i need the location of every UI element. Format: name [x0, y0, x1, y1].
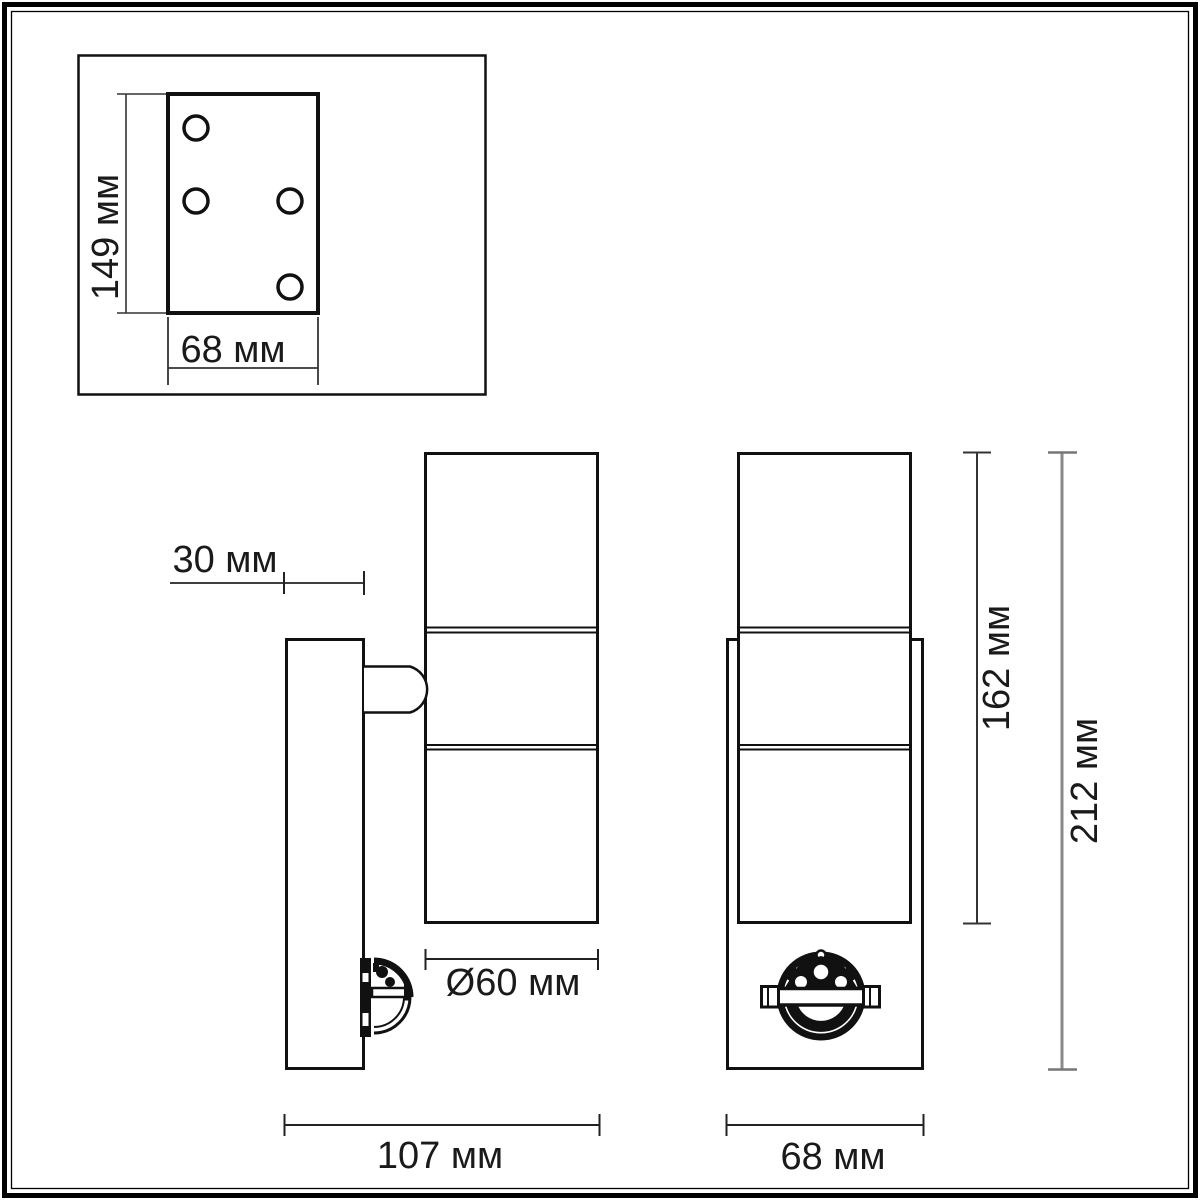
technical-drawing-page: 149 мм 68 мм 30 мм Ø60 мм 107 мм 162 мм …	[0, 0, 1200, 1200]
side-cylinder-body	[426, 454, 598, 923]
front-view	[726, 452, 1077, 1136]
side-mounting-arm	[364, 667, 427, 713]
mounting-plate-face	[168, 94, 318, 313]
dim-label-wall-offset: 30 мм	[172, 541, 277, 579]
dim-label-total-height: 212 мм	[1066, 718, 1104, 844]
mounting-hole	[278, 275, 302, 299]
mounting-hole	[278, 189, 302, 213]
dim-label-lamp-height: 162 мм	[978, 605, 1016, 731]
dim-label-plate-width: 68 мм	[180, 331, 285, 369]
dim-label-depth: 107 мм	[377, 1137, 503, 1175]
dim-body-width-lines	[726, 1114, 924, 1136]
dim-label-body-width: 68 мм	[780, 1138, 885, 1176]
dim-label-diameter: Ø60 мм	[446, 964, 581, 1002]
side-wall-plate	[287, 640, 364, 1069]
side-motion-sensor	[360, 958, 411, 1037]
front-cylinder-body	[739, 454, 911, 923]
dim-label-plate-height: 149 мм	[87, 174, 125, 300]
page-frame	[5, 5, 1196, 1196]
mounting-hole	[184, 116, 208, 140]
drawing-canvas	[0, 0, 1200, 1200]
mounting-hole	[184, 189, 208, 213]
dim-depth-lines	[284, 1114, 600, 1136]
